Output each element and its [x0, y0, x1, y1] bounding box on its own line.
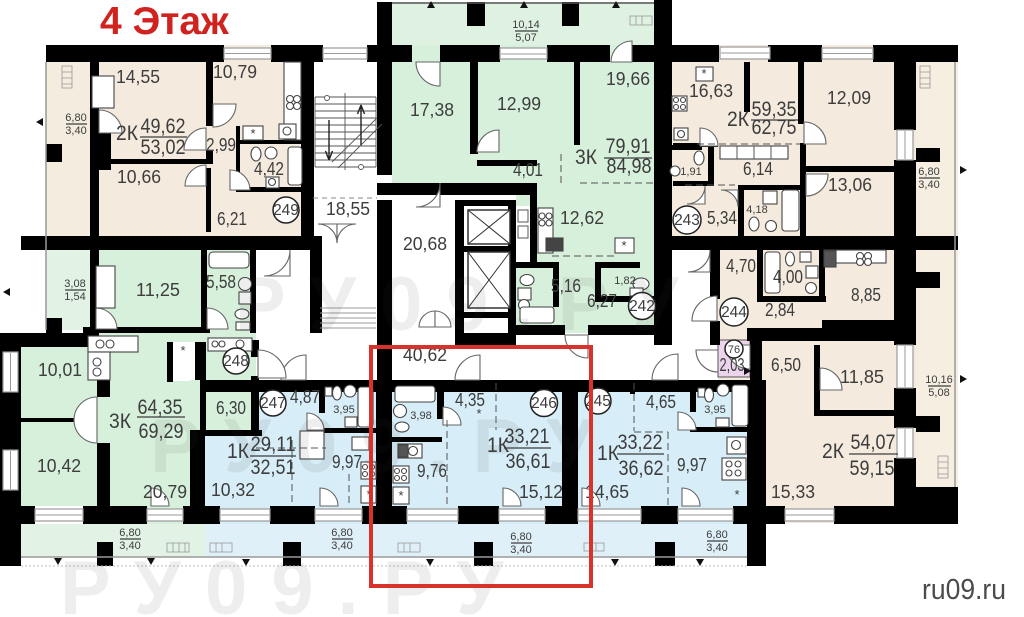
svg-text:14,55: 14,55 — [116, 67, 160, 87]
svg-text:36,62: 36,62 — [619, 457, 664, 480]
svg-text:9,97: 9,97 — [677, 455, 707, 475]
svg-text:1,91: 1,91 — [680, 166, 701, 178]
svg-text:18,55: 18,55 — [326, 199, 370, 219]
svg-text:2К: 2К — [116, 122, 139, 145]
svg-text:54,07: 54,07 — [851, 431, 896, 454]
svg-text:6,80: 6,80 — [119, 527, 140, 539]
svg-text:8,85: 8,85 — [851, 285, 881, 305]
svg-text:6,50: 6,50 — [771, 355, 801, 375]
svg-text:76: 76 — [728, 344, 740, 356]
svg-text:3,95: 3,95 — [704, 404, 725, 416]
svg-text:РУ09.РУ: РУ09.РУ — [235, 262, 703, 347]
svg-text:53,02: 53,02 — [141, 136, 186, 159]
svg-text:20,68: 20,68 — [403, 234, 447, 254]
svg-text:49,62: 49,62 — [141, 115, 186, 138]
svg-text:10,01: 10,01 — [38, 360, 82, 380]
svg-text:4,00: 4,00 — [773, 267, 803, 287]
svg-text:*: * — [180, 343, 185, 358]
svg-text:6,21: 6,21 — [217, 209, 247, 229]
svg-text:6,80: 6,80 — [65, 112, 86, 124]
svg-text:3,40: 3,40 — [918, 179, 939, 191]
svg-text:РУ09.РУ: РУ09.РУ — [60, 546, 528, 617]
svg-text:РУ09.РУ: РУ09.РУ — [150, 404, 618, 489]
svg-text:2К: 2К — [727, 108, 750, 131]
svg-text:*: * — [621, 238, 626, 253]
svg-text:248: 248 — [223, 353, 249, 370]
svg-text:249: 249 — [273, 202, 299, 219]
svg-text:4,70: 4,70 — [726, 256, 756, 276]
svg-text:2,99: 2,99 — [206, 135, 236, 155]
svg-text:4,18: 4,18 — [746, 204, 767, 216]
svg-text:12,09: 12,09 — [827, 88, 871, 108]
svg-text:5,07: 5,07 — [515, 32, 536, 44]
svg-text:33,22: 33,22 — [618, 431, 663, 454]
svg-text:*: * — [734, 487, 739, 502]
svg-text:4,01: 4,01 — [513, 160, 543, 180]
svg-text:13,06: 13,06 — [828, 175, 872, 195]
svg-text:10,16: 10,16 — [925, 374, 953, 386]
svg-text:5,08: 5,08 — [928, 387, 949, 399]
svg-text:*: * — [398, 488, 403, 503]
svg-text:3,40: 3,40 — [65, 125, 86, 137]
svg-text:2,84: 2,84 — [765, 300, 795, 320]
svg-text:3,40: 3,40 — [706, 542, 727, 554]
svg-text:15,33: 15,33 — [771, 482, 815, 502]
svg-text:16,63: 16,63 — [689, 81, 733, 101]
svg-text:6,80: 6,80 — [331, 527, 352, 539]
svg-text:ru09.ru: ru09.ru — [922, 574, 1006, 606]
svg-text:3,08: 3,08 — [64, 278, 85, 290]
svg-text:*: * — [250, 126, 255, 141]
svg-text:5,58: 5,58 — [206, 272, 236, 292]
svg-text:17,38: 17,38 — [410, 100, 454, 120]
svg-text:4,65: 4,65 — [646, 392, 676, 412]
svg-text:3К: 3К — [109, 410, 132, 433]
svg-text:4,42: 4,42 — [254, 159, 284, 179]
svg-text:59,15: 59,15 — [850, 457, 895, 480]
svg-text:6,80: 6,80 — [706, 529, 727, 541]
svg-text:4 Этаж: 4 Этаж — [100, 0, 229, 43]
svg-text:19,66: 19,66 — [606, 69, 650, 89]
svg-text:1,54: 1,54 — [64, 291, 85, 303]
svg-text:11,85: 11,85 — [840, 367, 884, 387]
svg-text:244: 244 — [721, 304, 747, 321]
svg-text:10,66: 10,66 — [117, 167, 161, 187]
svg-text:243: 243 — [674, 212, 700, 229]
svg-text:*: * — [701, 66, 706, 81]
svg-text:11,25: 11,25 — [136, 280, 180, 300]
svg-text:6,14: 6,14 — [743, 159, 773, 179]
svg-text:12,99: 12,99 — [497, 94, 541, 114]
svg-text:2К: 2К — [822, 440, 845, 463]
svg-text:10,14: 10,14 — [512, 19, 540, 31]
svg-text:5,34: 5,34 — [707, 208, 737, 228]
svg-text:3К: 3К — [575, 146, 598, 169]
svg-text:10,42: 10,42 — [37, 456, 81, 476]
svg-text:10,79: 10,79 — [213, 62, 257, 82]
svg-text:6,80: 6,80 — [918, 166, 939, 178]
svg-text:6,80: 6,80 — [510, 531, 531, 543]
svg-text:12,62: 12,62 — [560, 208, 604, 228]
